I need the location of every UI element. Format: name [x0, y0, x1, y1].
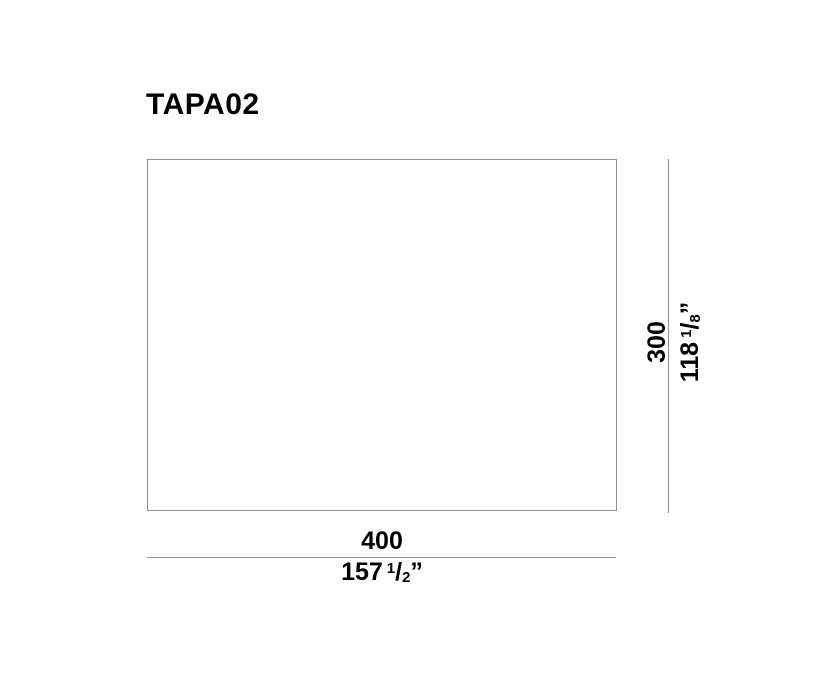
- width-imperial-whole: 157: [341, 558, 383, 586]
- product-code-title: TAPA02: [146, 88, 260, 122]
- width-fraction-denominator: 2: [402, 569, 410, 586]
- height-fraction-separator: /: [676, 323, 704, 330]
- height-imperial-label: 1181/8”: [677, 262, 703, 422]
- height-inch-mark: ”: [676, 302, 704, 315]
- height-fraction-denominator: 8: [687, 314, 704, 322]
- height-imperial-whole: 118: [676, 342, 704, 382]
- width-imperial-label: 1571/2”: [147, 559, 617, 589]
- width-inch-mark: ”: [410, 558, 423, 586]
- width-fraction-numerator: 1: [387, 560, 395, 577]
- tabletop-outline-rectangle: [147, 159, 617, 511]
- width-metric-label: 400: [147, 528, 617, 554]
- product-spec-sheet: TAPA02 400 1571/2” 300 1181/8”: [0, 0, 840, 679]
- height-fraction-numerator: 1: [678, 330, 695, 338]
- height-metric-label: 300: [644, 262, 670, 422]
